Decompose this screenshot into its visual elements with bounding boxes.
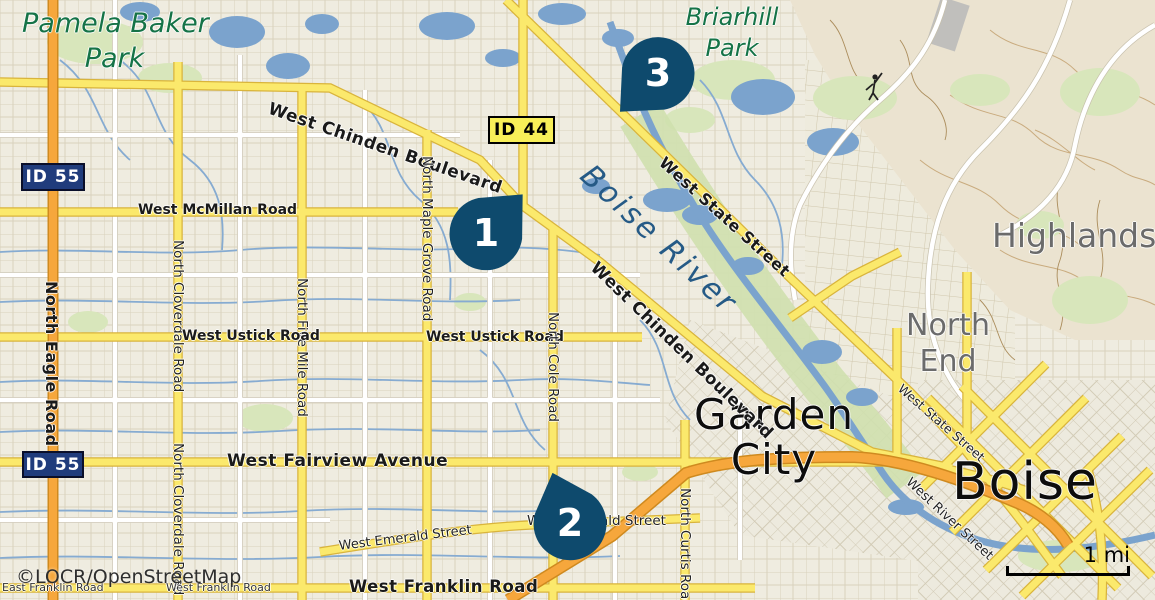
map-marker-2[interactable]: 2 <box>522 468 618 564</box>
label-pamela-baker-park: Pamela Baker Park <box>22 6 207 76</box>
scale-bar-label: 1 mi <box>1040 543 1130 567</box>
label-highlands: Highlands <box>992 216 1155 256</box>
map-marker-3-number: 3 <box>645 54 671 92</box>
label-garden-city: Garden City <box>690 392 858 483</box>
shield-id55-lower: ID 55 <box>22 451 84 478</box>
label-north-end: North End <box>900 308 996 380</box>
label-north-curtis-road: North Curtis Road <box>677 488 693 600</box>
map-marker-1-number: 1 <box>473 214 499 252</box>
label-west-ustick-road-2: West Ustick Road <box>426 329 564 345</box>
shield-id44: ID 44 <box>488 116 555 144</box>
label-north-five-mile-road: North Five Mile Road <box>294 278 310 417</box>
map-marker-1[interactable]: 1 <box>438 178 534 274</box>
label-north-cloverdale-road-1: North Cloverdale Road <box>170 240 186 392</box>
label-west-ustick-road-1: West Ustick Road <box>182 328 320 344</box>
map-marker-2-number: 2 <box>557 504 583 542</box>
map-marker-3[interactable]: 3 <box>610 18 706 114</box>
scale-bar <box>1006 566 1130 576</box>
map-canvas[interactable]: Pamela Baker Park Briarhill Park Boise R… <box>0 0 1155 600</box>
label-west-fairview-avenue: West Fairview Avenue <box>227 451 448 471</box>
label-west-mcmillan-road: West McMillan Road <box>138 202 297 218</box>
shield-id55-upper: ID 55 <box>21 163 85 191</box>
label-west-franklin-road-bold: West Franklin Road <box>349 577 538 596</box>
label-north-cole-road: North Cole Road <box>545 312 561 422</box>
label-north-eagle-road: North Eagle Road <box>42 281 61 447</box>
attribution: ©LOCR/OpenStreetMap <box>16 566 241 588</box>
